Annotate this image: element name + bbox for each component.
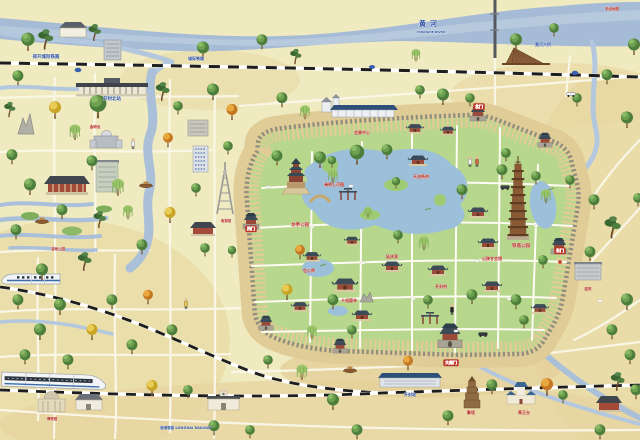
bus-stop-marker [411, 298, 415, 300]
top-left-house [59, 22, 87, 37]
shape [541, 139, 550, 143]
map-label: 大相国寺 [341, 297, 357, 303]
map-label: 湿地公园 [51, 246, 65, 251]
shape [573, 95, 575, 97]
pagoda-eave [510, 202, 526, 204]
bus-stop-marker [349, 185, 353, 187]
map-label: 北门 [475, 103, 483, 109]
shape [473, 112, 483, 116]
pagoda-tier [464, 400, 480, 408]
shape [468, 159, 471, 165]
shape [441, 134, 455, 136]
map-label: 手绘地图 [605, 6, 619, 11]
shape [246, 220, 256, 224]
shape [414, 129, 416, 132]
map-label: 清明上河园 [324, 181, 344, 187]
shape [485, 335, 487, 337]
bus-stop-marker [361, 262, 365, 264]
map-label: 开封站 [404, 391, 416, 397]
shape [507, 188, 509, 190]
shape [568, 95, 570, 97]
shape [131, 141, 134, 147]
map-label: 禹王台 [518, 409, 530, 415]
bus-stop-marker [266, 186, 270, 188]
shape [539, 309, 541, 312]
pagoda-tier [467, 387, 477, 393]
bottom-left-house [75, 394, 103, 410]
shape [351, 241, 353, 243]
pagoda-eave [509, 210, 526, 212]
top-left-office [104, 40, 121, 60]
map-label: 大南门 [445, 359, 457, 365]
blue-window-office [193, 146, 208, 172]
shape [469, 216, 487, 218]
south-station-building [378, 373, 442, 387]
pagoda-tier [466, 393, 479, 400]
map-label: 陇海铁路 LONGHAI RAILWAY [160, 425, 212, 430]
shape [409, 164, 427, 166]
shape [339, 191, 357, 193]
shape [567, 93, 576, 96]
shape [421, 315, 439, 317]
map-label: 龙亭公园 [290, 221, 309, 228]
map-label: 黄河 [419, 19, 441, 28]
shape [502, 188, 504, 190]
shape [476, 156, 479, 159]
shape [185, 298, 188, 301]
shape [299, 307, 301, 310]
map-label: 西门 [247, 225, 255, 231]
map-label: 郑开城际铁路 [33, 53, 60, 60]
pagoda-eave [508, 226, 528, 228]
pagoda-eave [511, 194, 526, 196]
shape [407, 132, 423, 134]
shape [429, 274, 447, 276]
shape [292, 310, 308, 312]
pagoda-eave [509, 218, 528, 220]
map-label: 电视塔 [221, 218, 232, 223]
bus-stop-marker [454, 330, 458, 332]
pagoda-tier [469, 381, 476, 387]
shape [348, 367, 353, 370]
shape [450, 307, 453, 313]
shape [262, 322, 271, 326]
shape [437, 271, 439, 274]
shape [184, 301, 187, 307]
shape [132, 138, 135, 141]
map-label: 黄河大桥 [534, 41, 551, 47]
bottom-right-temple [596, 396, 622, 412]
shape [361, 316, 363, 319]
map-label: 山陕甘会馆 [482, 255, 502, 261]
shape [479, 333, 488, 336]
pagoda-eave [508, 234, 529, 236]
shape [477, 213, 479, 216]
shape [343, 286, 346, 290]
shape [491, 287, 493, 290]
pagoda-eave [512, 178, 525, 180]
map-canvas: 黄河HUANGHE RIVER郑开城际铁路城际铁路黄河大桥开封北站会展中心北门龙… [0, 0, 640, 440]
shape [383, 270, 401, 272]
map-label: 博物馆 [47, 416, 58, 421]
map-label: 包公祠 [302, 267, 315, 273]
map-label: 开封北站 [103, 95, 121, 102]
shape [336, 345, 345, 349]
map-label: 医院 [585, 286, 593, 291]
poi-dot-marker [558, 260, 562, 264]
shape [353, 319, 371, 321]
shape [480, 335, 482, 337]
grey-office [188, 120, 208, 136]
shape [469, 156, 472, 159]
map-label: 天波杨府 [413, 173, 429, 179]
shape [40, 218, 45, 221]
shape [344, 188, 352, 190]
pagoda-eave [511, 186, 525, 188]
shape [304, 260, 320, 262]
shape [417, 161, 419, 164]
shape [333, 290, 356, 293]
shape [483, 290, 501, 292]
shape [487, 244, 489, 247]
shape [144, 182, 149, 185]
shape [532, 312, 548, 314]
bus-stop-marker [475, 260, 479, 262]
bus-stop-marker [310, 226, 314, 228]
right-building [574, 262, 602, 280]
bus-stop-marker [507, 298, 511, 300]
map-label: 城际铁路 [188, 55, 204, 61]
shape [479, 247, 497, 249]
bullet-train-upper [2, 274, 60, 284]
shape [345, 244, 359, 246]
bus-stop-marker [598, 300, 602, 302]
bus-stop-marker [534, 225, 538, 227]
map-label: 铁塔公园 [512, 242, 530, 249]
shape [447, 131, 449, 133]
map-label: 金明池 [89, 124, 101, 129]
illustrated-city-map: 黄河HUANGHE RIVER郑开城际铁路城际铁路黄河大桥开封北站会展中心北门龙… [0, 0, 640, 440]
shape [311, 257, 313, 260]
map-label: 延庆观 [385, 253, 398, 259]
shape [443, 334, 458, 340]
map-label: HUANGHE RIVER [417, 30, 446, 34]
map-label: 开封府 [435, 283, 447, 289]
map-label: 会展中心 [354, 129, 370, 135]
shape [426, 312, 434, 314]
shape [451, 304, 454, 307]
left-temple [190, 222, 216, 236]
map-label: 繁塔 [466, 409, 476, 415]
pagoda-base [507, 236, 529, 240]
map-label: 东门 [556, 247, 564, 253]
shape [501, 186, 510, 189]
pagoda-eave [512, 170, 523, 172]
left-long-hall [44, 176, 90, 195]
shape [391, 267, 393, 270]
shape [475, 159, 478, 165]
